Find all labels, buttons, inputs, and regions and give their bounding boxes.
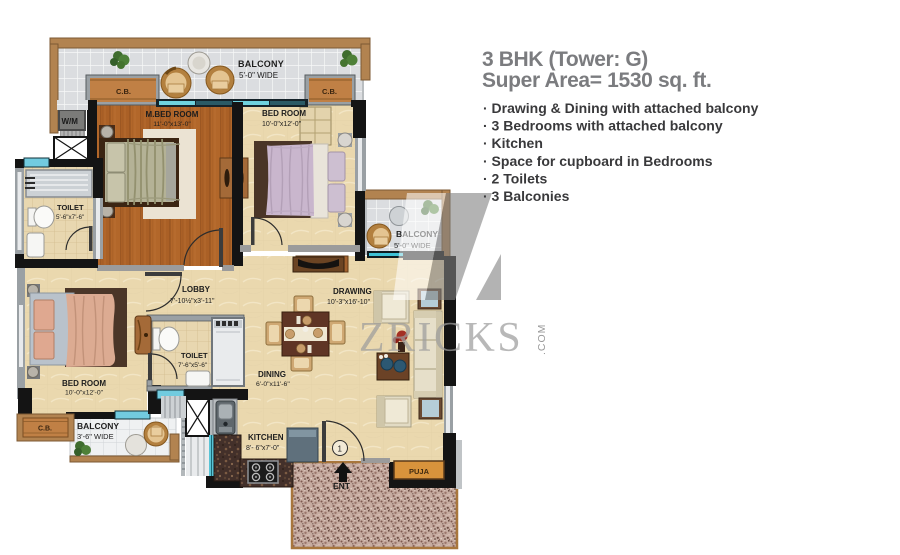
svg-text:ZRICKS: ZRICKS [359, 315, 523, 361]
svg-text:10'-0"x12'-0": 10'-0"x12'-0" [65, 390, 104, 397]
svg-text:Super Area= 1530 sq. ft.: Super Area= 1530 sq. ft. [482, 69, 712, 92]
svg-text:· Kitchen: · Kitchen [483, 135, 543, 151]
svg-text:7'-6"x5'-6": 7'-6"x5'-6" [178, 362, 208, 369]
svg-text:DRAWING: DRAWING [333, 287, 372, 296]
svg-text:C.B.: C.B. [38, 426, 52, 433]
svg-text:5'-6"x7'-6": 5'-6"x7'-6" [56, 214, 84, 221]
svg-text:7'-10½"x3'-11": 7'-10½"x3'-11" [170, 297, 215, 305]
svg-text:TOILET: TOILET [181, 351, 208, 360]
svg-text:8'- 6"x7'-0": 8'- 6"x7'-0" [246, 445, 280, 452]
svg-text:1: 1 [338, 445, 343, 454]
svg-text:PUJA: PUJA [409, 467, 430, 476]
svg-text:· Drawing & Dining with attach: · Drawing & Dining with attached balcony [483, 100, 759, 116]
svg-text:KITCHEN: KITCHEN [248, 433, 284, 442]
svg-text:ENT: ENT [333, 481, 351, 491]
svg-text:3 BHK (Tower: G): 3 BHK (Tower: G) [482, 48, 648, 71]
svg-text:5'-0" WIDE: 5'-0" WIDE [239, 71, 278, 80]
svg-text:· 2 Toilets: · 2 Toilets [483, 170, 548, 186]
svg-text:BED ROOM: BED ROOM [262, 109, 306, 118]
svg-text:· 3 Balconies: · 3 Balconies [483, 188, 570, 204]
svg-text:10'-0"x12'-0": 10'-0"x12'-0" [262, 121, 302, 128]
svg-text:W/M: W/M [62, 117, 79, 126]
svg-text:BED ROOM: BED ROOM [62, 379, 106, 388]
svg-text:· 3 Bedrooms with attached bal: · 3 Bedrooms with attached balcony [483, 118, 723, 134]
svg-text:DINING: DINING [258, 370, 286, 379]
svg-text:C.B.: C.B. [322, 87, 337, 96]
svg-text:6'-0"x11'-6": 6'-0"x11'-6" [256, 381, 290, 388]
svg-text:TOILET: TOILET [57, 203, 84, 212]
svg-text:.COM: .COM [536, 324, 548, 355]
svg-text:C.B.: C.B. [116, 87, 131, 96]
svg-text:BALCONY: BALCONY [77, 421, 119, 431]
svg-text:M.BED ROOM: M.BED ROOM [146, 110, 199, 119]
svg-text:10'-3"x16'-10": 10'-3"x16'-10" [327, 299, 371, 306]
svg-text:3'-6" WIDE: 3'-6" WIDE [77, 432, 114, 441]
svg-text:· Space for cupboard in Bedroo: · Space for cupboard in Bedrooms [483, 153, 713, 169]
svg-text:11'-0"x13'-0": 11'-0"x13'-0" [153, 121, 191, 128]
svg-text:BALCONY: BALCONY [238, 59, 284, 69]
svg-text:LOBBY: LOBBY [182, 285, 211, 294]
